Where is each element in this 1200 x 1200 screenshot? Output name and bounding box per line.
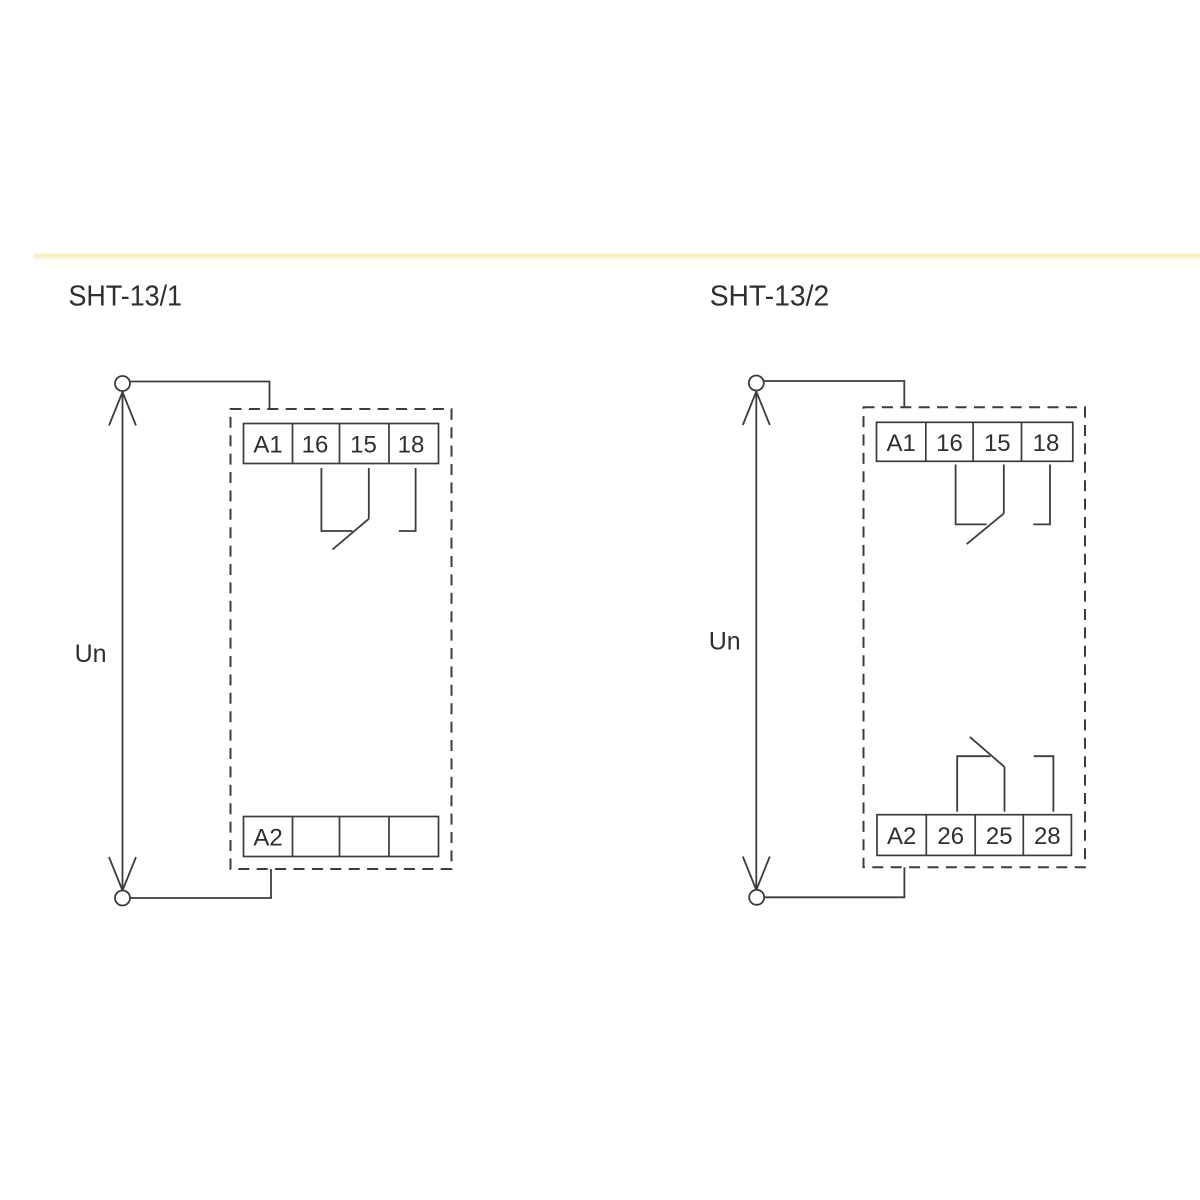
svg-text:A1: A1 bbox=[887, 430, 916, 457]
svg-text:SHT-13/2: SHT-13/2 bbox=[710, 281, 830, 313]
svg-text:18: 18 bbox=[398, 432, 425, 459]
svg-text:25: 25 bbox=[986, 823, 1013, 850]
svg-text:15: 15 bbox=[984, 430, 1011, 457]
svg-text:SHT-13/1: SHT-13/1 bbox=[69, 281, 183, 313]
svg-text:A2: A2 bbox=[887, 823, 916, 850]
svg-text:A1: A1 bbox=[253, 432, 282, 459]
svg-text:18: 18 bbox=[1033, 430, 1060, 457]
svg-text:15: 15 bbox=[350, 432, 377, 459]
svg-text:28: 28 bbox=[1034, 823, 1061, 850]
svg-text:16: 16 bbox=[936, 430, 963, 457]
svg-text:A2: A2 bbox=[253, 825, 282, 852]
svg-text:16: 16 bbox=[302, 432, 329, 459]
svg-text:Un: Un bbox=[709, 628, 741, 656]
svg-text:26: 26 bbox=[937, 823, 964, 850]
svg-text:Un: Un bbox=[75, 640, 107, 668]
